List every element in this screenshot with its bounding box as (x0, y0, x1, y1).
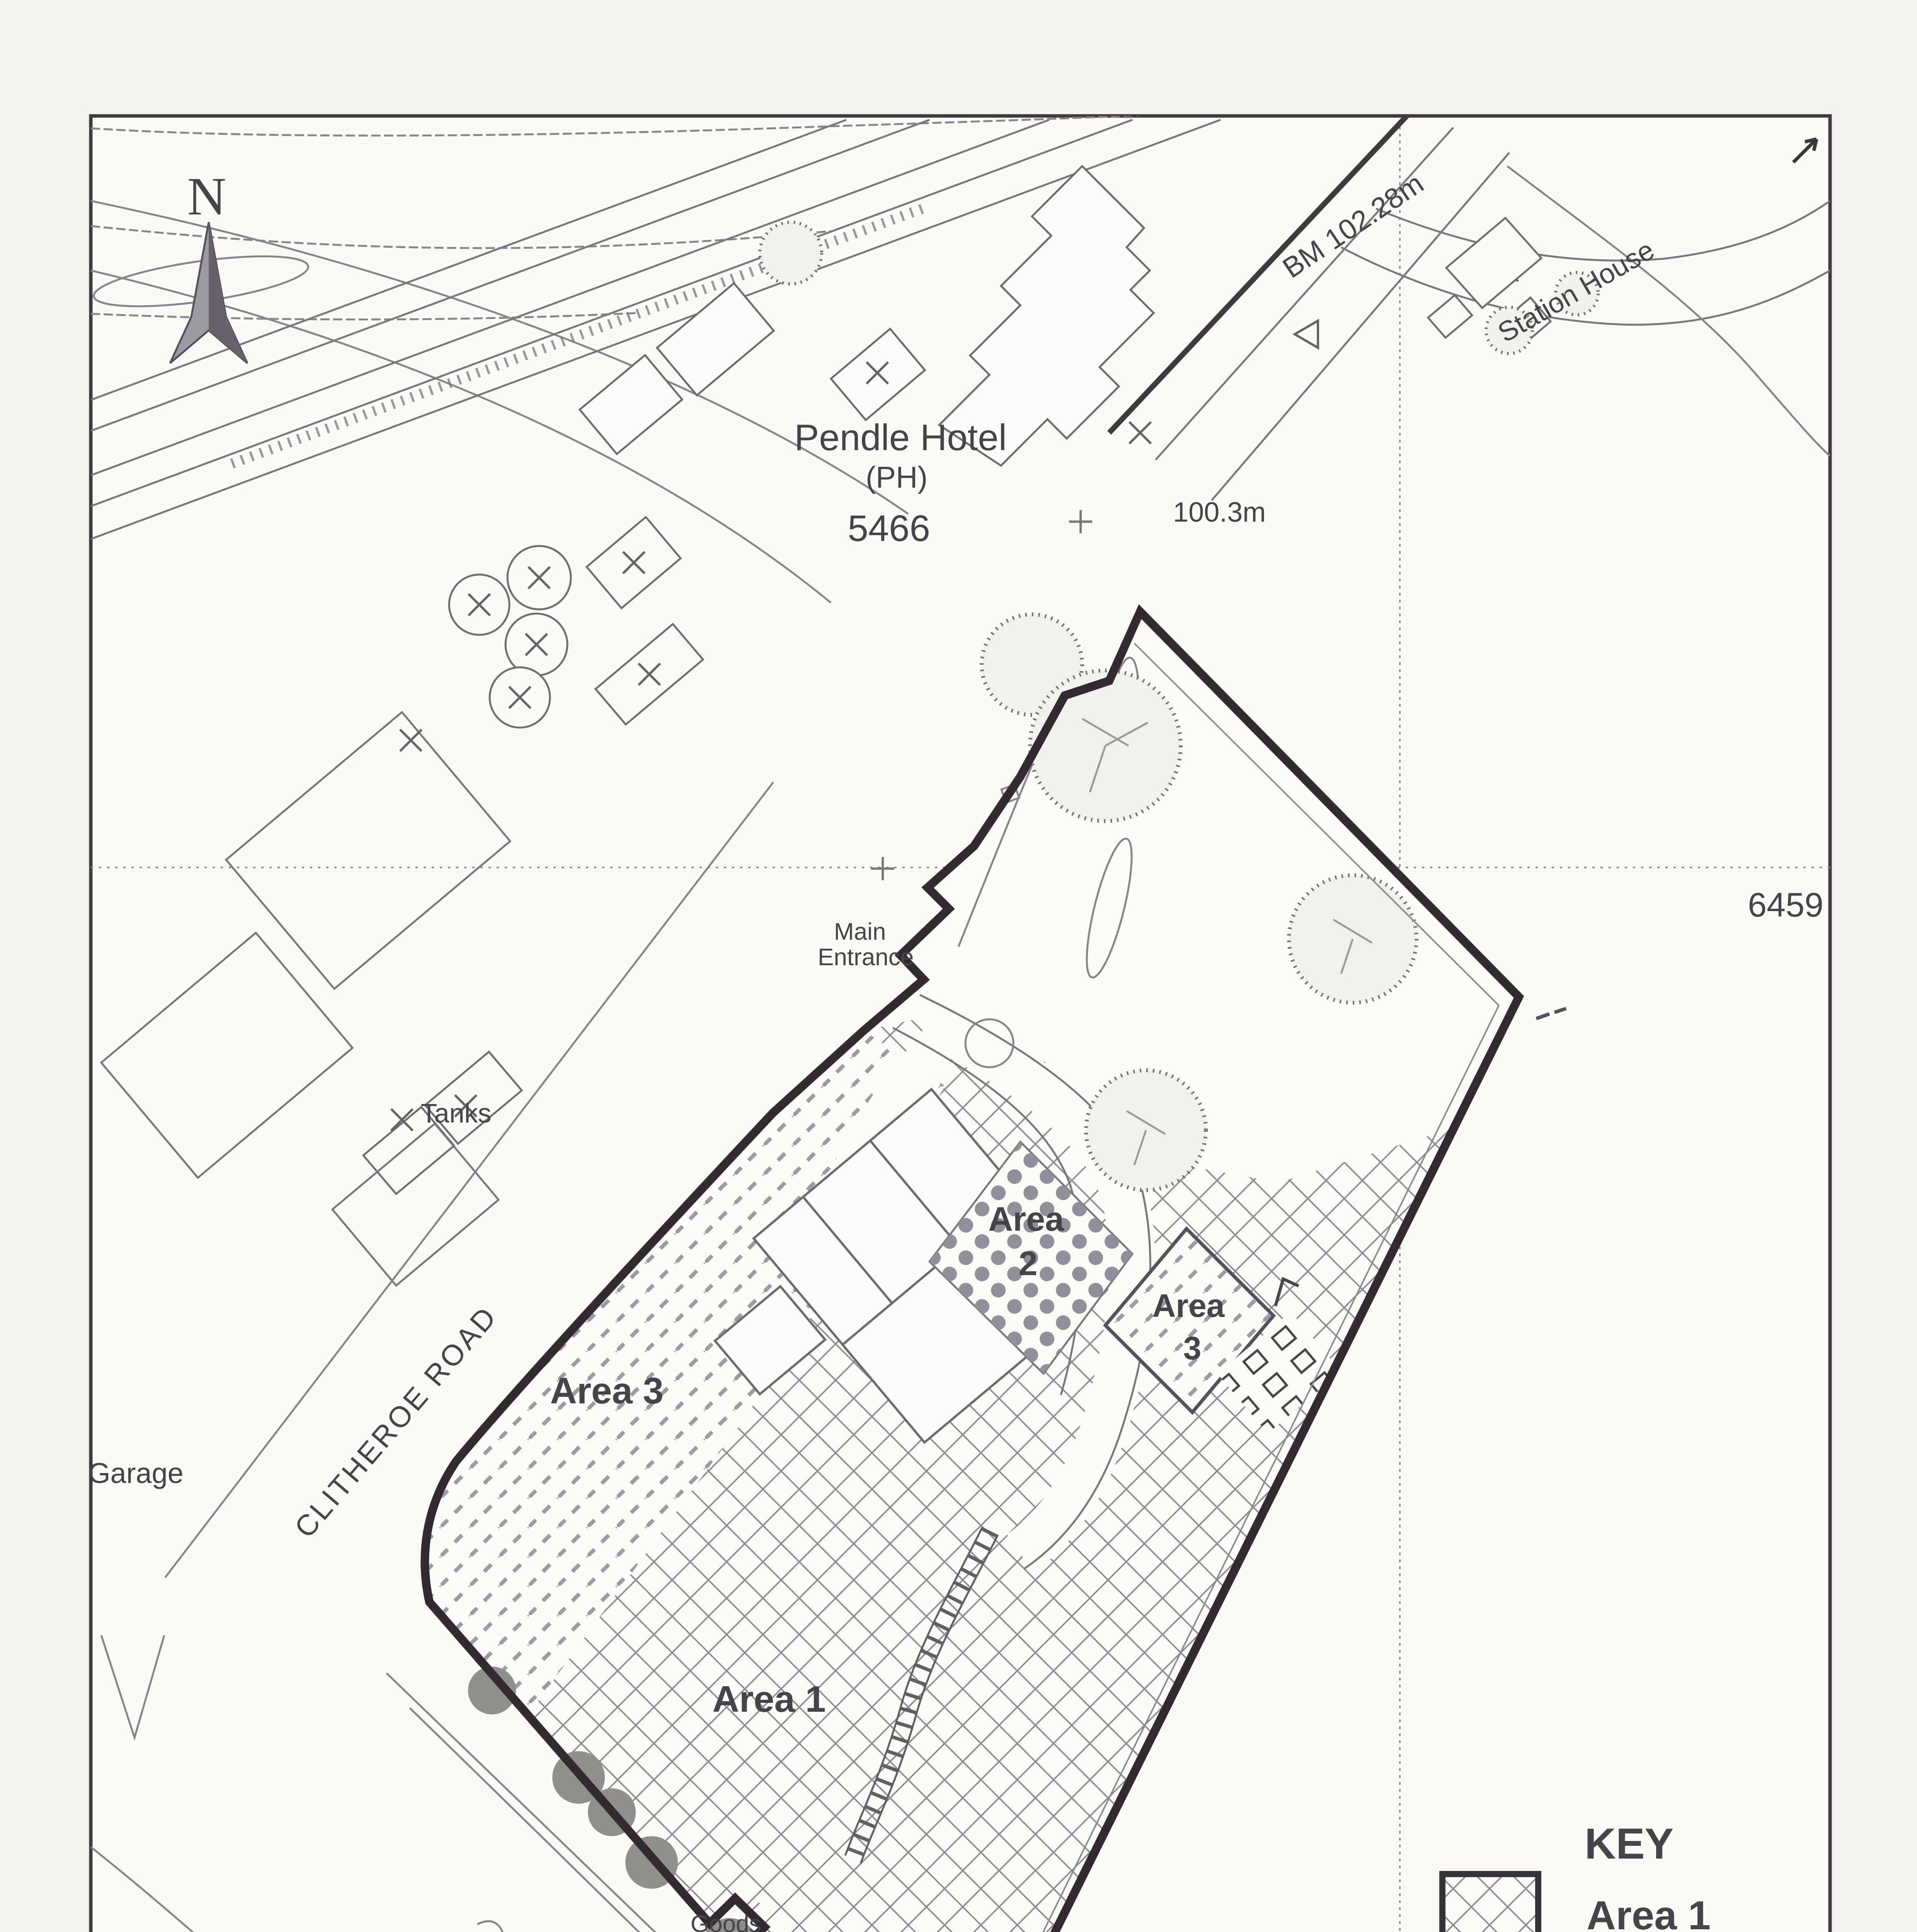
area3-small-label-line2: 3 (1183, 1330, 1202, 1366)
goods-inwards-label-line1: Goods (691, 1911, 761, 1932)
site-plan-page: Pendle Hotel (PH) 5466 BM 102.28m Statio… (0, 0, 1917, 1932)
key-title: KEY (1585, 1820, 1674, 1868)
garage-label: Garage (88, 1457, 184, 1489)
key-label-area1: Area 1 (1587, 1893, 1711, 1932)
area3-label: Area 3 (550, 1370, 664, 1412)
spot-height-label: 100.3m (1173, 497, 1266, 528)
area3-small-label-line1: Area (1153, 1287, 1225, 1324)
area1-label: Area 1 (712, 1679, 826, 1720)
area2-label-line1: Area (988, 1200, 1064, 1238)
grid-reference-label: 6459 (1748, 886, 1823, 924)
north-letter: N (187, 167, 226, 226)
site-plan-drawing: Pendle Hotel (PH) 5466 BM 102.28m Statio… (0, 0, 1917, 1932)
pendle-hotel-label: Pendle Hotel (794, 417, 1007, 458)
public-house-label: (PH) (866, 460, 928, 494)
main-entrance-label-line1: Main (834, 918, 886, 945)
area2-label-line2: 2 (1019, 1244, 1038, 1282)
tanks-label: Tanks (421, 1098, 492, 1128)
key-swatch-crosshatch (1445, 1877, 1535, 1932)
main-entrance-label-line2: Entrance (818, 944, 914, 971)
parcel-number-label: 5466 (848, 508, 930, 549)
